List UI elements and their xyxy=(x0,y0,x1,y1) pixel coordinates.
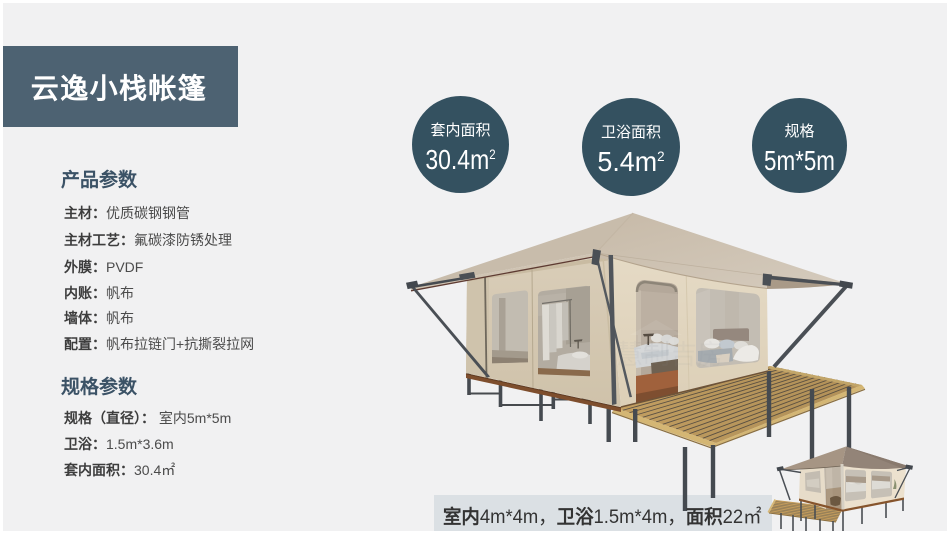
svg-text:慧制吉房: 慧制吉房 xyxy=(616,340,724,370)
